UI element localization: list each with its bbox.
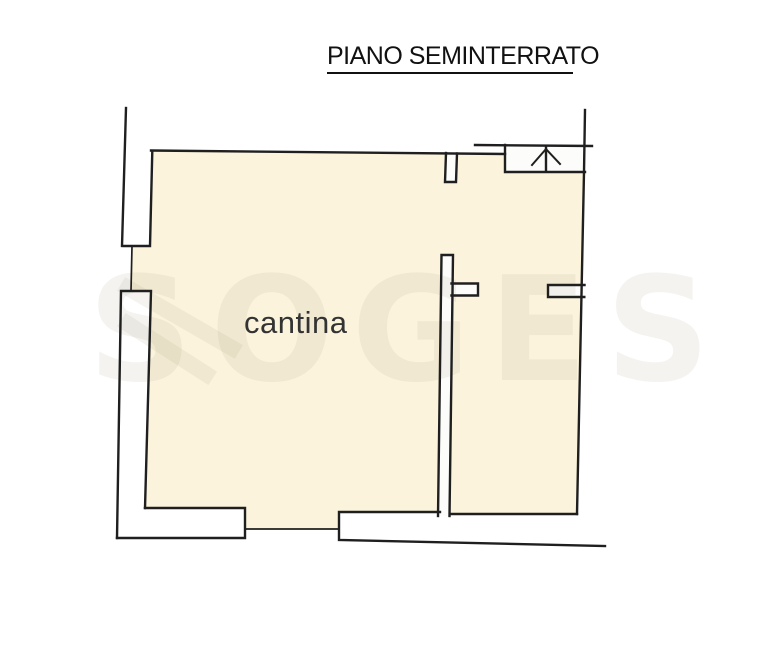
watermark: SOGES bbox=[88, 246, 728, 415]
room-label-cantina: cantina bbox=[244, 306, 347, 340]
bottom-right-wall bbox=[339, 512, 605, 546]
stair-upper-line bbox=[475, 145, 592, 146]
floor-plan-drawing: SOGES bbox=[0, 0, 758, 661]
upper-left-wall bbox=[122, 108, 152, 246]
floor-plan-page: PIANO SEMINTERRATO SOGES bbox=[0, 0, 758, 661]
left-opening-line bbox=[131, 246, 132, 291]
watermark-text: SOGES bbox=[88, 246, 728, 415]
bottom-left-wall bbox=[117, 508, 245, 538]
